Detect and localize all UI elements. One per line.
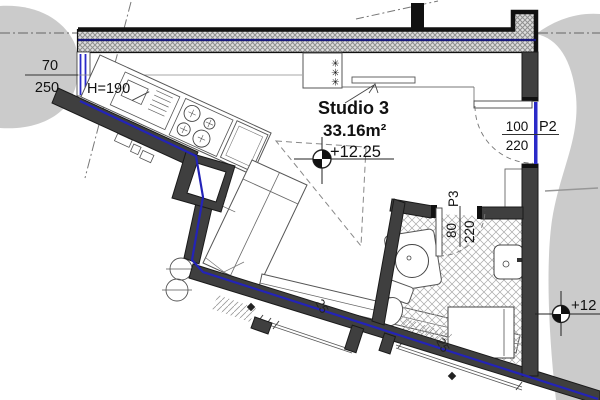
level-right-label: +12 — [571, 297, 596, 314]
door-p3-label: P3 — [446, 190, 461, 207]
room-area: 33.16m² — [323, 121, 387, 140]
door-p3-height: 220 — [462, 220, 477, 243]
washbasin — [396, 245, 429, 278]
floorplan-drawing: ✳✳✳ — [0, 0, 600, 400]
window-height-label: 250 — [35, 80, 59, 96]
right-wall-lower — [522, 164, 538, 376]
room-level: +12.25 — [330, 143, 381, 161]
door-p3-width: 80 — [444, 223, 459, 238]
room-name: Studio 3 — [318, 98, 389, 118]
bathroom-wall-right — [481, 207, 523, 219]
door-p2-panel — [534, 102, 538, 164]
door-p2-width: 100 — [506, 119, 529, 134]
wall-cap-p2-bottom — [522, 164, 538, 168]
parapet-label: H=190 — [87, 81, 130, 97]
floorplan-canvas: ✳✳✳ — [0, 0, 600, 400]
door-p2-height: 220 — [506, 138, 529, 153]
exterior-wall-top-step — [513, 12, 536, 32]
wall-cap-p3-right — [477, 206, 482, 219]
door-p2-label: P2 — [539, 119, 557, 135]
exterior-wall-top — [78, 31, 536, 52]
chimney-pier — [411, 3, 424, 29]
right-wall-upper — [522, 52, 538, 101]
door-p3-leaf — [436, 208, 442, 256]
wardrobe-symbol: ✳✳✳ — [331, 58, 342, 86]
door-p2-leaf — [474, 101, 532, 108]
wall-cap-p2-top — [522, 97, 538, 101]
shelf — [352, 77, 415, 83]
window-width-label: 70 — [42, 58, 58, 74]
